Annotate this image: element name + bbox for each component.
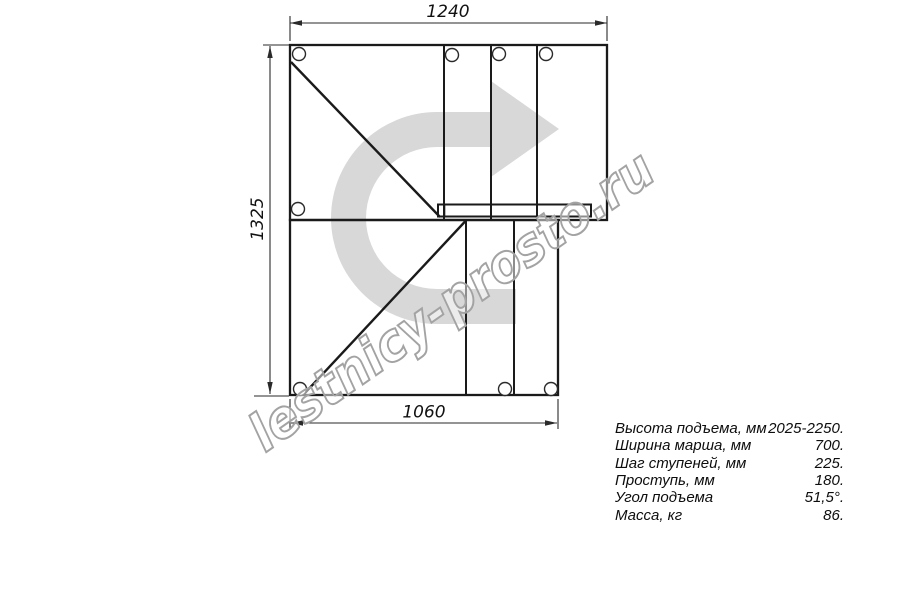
- spec-row: Шаг ступеней, мм 225.: [615, 455, 844, 472]
- hole-icon: [293, 48, 306, 61]
- spec-row: Проступь, мм 180.: [615, 472, 844, 489]
- spec-table: Высота подъема, мм 2025-2250. Ширина мар…: [615, 420, 844, 524]
- spec-label: Высота подъема, мм: [615, 420, 767, 437]
- spec-value: 700.: [815, 437, 844, 454]
- spec-row: Высота подъема, мм 2025-2250.: [615, 420, 844, 437]
- spec-value: 86.: [823, 507, 844, 524]
- hole-icon: [446, 49, 459, 62]
- dimension-top: 1240: [290, 2, 607, 41]
- dimension-bottom-label: 1060: [402, 403, 445, 423]
- drawing-canvas: 1240 1325 1060 lestnicy-prosto.ru Высота…: [0, 0, 900, 600]
- spec-row: Масса, кг 86.: [615, 507, 844, 524]
- hole-icon: [493, 48, 506, 61]
- dimension-left: 1325: [248, 45, 289, 396]
- hole-icon: [545, 383, 558, 396]
- dim-arrow-icon: [267, 46, 272, 58]
- hole-icon: [499, 383, 512, 396]
- spec-value: 51,5°.: [805, 489, 844, 506]
- spec-label: Шаг ступеней, мм: [615, 455, 746, 472]
- dimension-left-label: 1325: [248, 197, 268, 240]
- hole-icon: [292, 203, 305, 216]
- dim-arrow-icon: [290, 20, 302, 25]
- dim-arrow-icon: [545, 420, 557, 425]
- spec-value: 180.: [815, 472, 844, 489]
- spec-label: Проступь, мм: [615, 472, 715, 489]
- spec-label: Угол подъема: [615, 489, 713, 506]
- spec-value: 2025-2250.: [768, 420, 844, 437]
- watermark: lestnicy-prosto.ru: [238, 139, 666, 463]
- spec-label: Масса, кг: [615, 507, 682, 524]
- dimension-top-label: 1240: [426, 2, 469, 22]
- spec-row: Ширина марша, мм 700.: [615, 437, 844, 454]
- spec-row: Угол подъема 51,5°.: [615, 489, 844, 506]
- spec-label: Ширина марша, мм: [615, 437, 751, 454]
- spec-value: 225.: [815, 455, 844, 472]
- dim-arrow-icon: [595, 20, 607, 25]
- hole-icon: [540, 48, 553, 61]
